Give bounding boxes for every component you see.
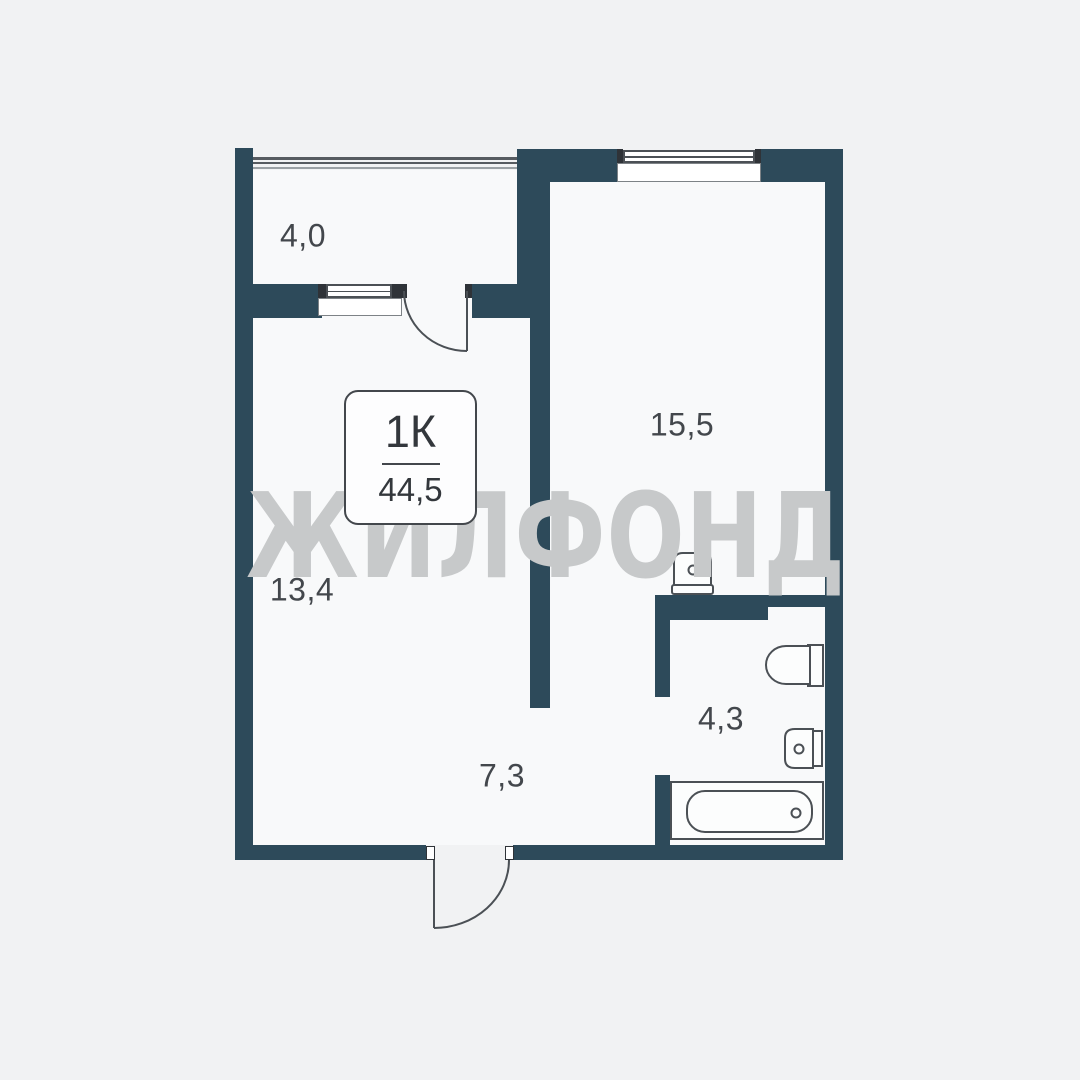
toilet-bowl <box>766 646 810 684</box>
balcony-area-label: 4,0 <box>280 218 326 255</box>
bathroom-area-label: 4,3 <box>698 701 744 738</box>
room-area-label: 15,5 <box>650 407 714 444</box>
unit-summary-card: 1К 44,5 <box>344 390 477 525</box>
agency-watermark: ЖИЛФОНД <box>246 467 846 605</box>
unit-type-label: 1К <box>385 407 436 457</box>
sink-drain <box>795 745 804 754</box>
floor-plan: 4,0 15,5 13,4 7,3 4,3 ЖИЛФОНД 1К 44,5 <box>0 0 1080 1080</box>
bathtub-drain <box>792 809 801 818</box>
unit-total-area: 44,5 <box>378 472 442 508</box>
balcony-door-swing-arc <box>404 291 467 351</box>
card-divider <box>382 463 440 465</box>
sink-column <box>813 731 822 766</box>
hallway-area-label: 7,3 <box>479 758 525 795</box>
entrance-door-swing-arc <box>434 860 509 928</box>
